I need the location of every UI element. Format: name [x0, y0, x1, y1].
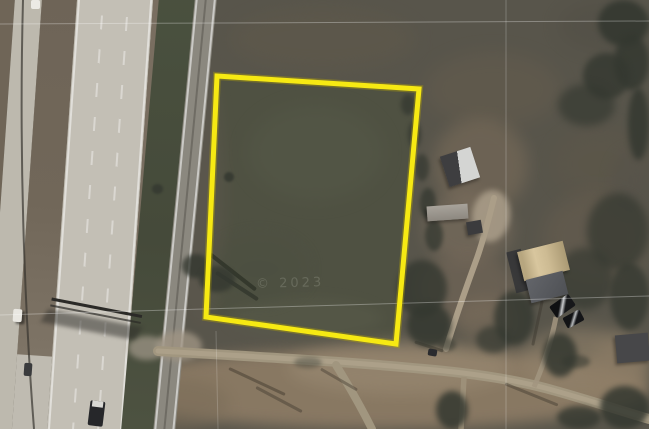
vehicle-white	[31, 0, 40, 9]
small-shed	[466, 220, 483, 235]
vehicle-truck	[88, 400, 106, 427]
highway-sign-gantry	[44, 290, 143, 355]
structures-layer	[0, 0, 649, 429]
long-outbuilding	[427, 204, 469, 222]
metal-roof-barn	[440, 147, 480, 187]
vehicle-white	[13, 309, 23, 323]
aerial-parcel-map: © 2023	[0, 0, 649, 429]
vehicle-dark	[427, 348, 437, 356]
vehicle-dark	[24, 363, 33, 377]
right-edge-house	[615, 333, 649, 364]
imagery-watermark: © 2023	[256, 275, 325, 292]
